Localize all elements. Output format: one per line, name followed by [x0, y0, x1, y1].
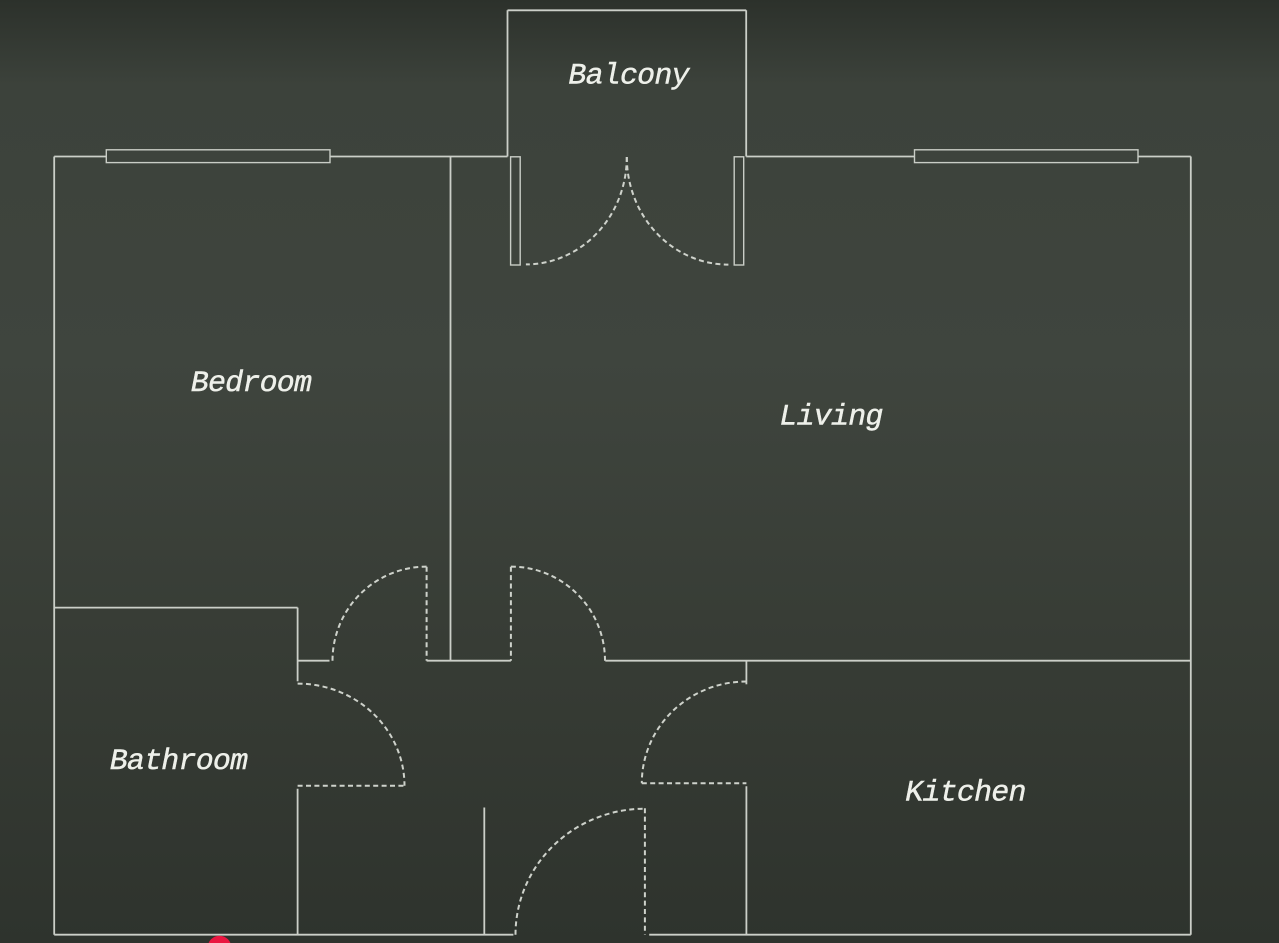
- svg-text:Bedroom: Bedroom: [191, 367, 312, 401]
- svg-text:Living: Living: [779, 401, 882, 435]
- svg-text:Balcony: Balcony: [568, 60, 690, 94]
- svg-text:Bathroom: Bathroom: [110, 745, 248, 779]
- svg-text:Kitchen: Kitchen: [905, 776, 1025, 810]
